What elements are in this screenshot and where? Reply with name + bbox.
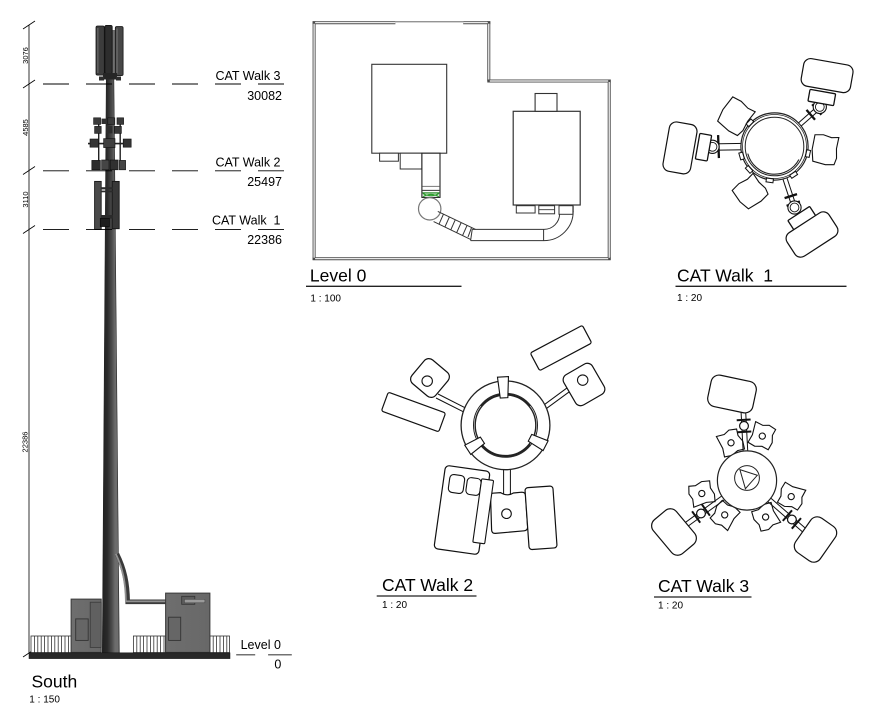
svg-text:CAT Walk 1: CAT Walk 1 [212,214,281,228]
svg-text:1 : 20: 1 : 20 [677,293,702,304]
svg-text:1 : 20: 1 : 20 [382,600,407,611]
svg-text:Level 0: Level 0 [241,638,281,652]
svg-text:3076: 3076 [21,47,30,64]
svg-text:4585: 4585 [21,119,30,136]
svg-text:1 : 20: 1 : 20 [658,601,683,612]
svg-text:0: 0 [274,658,281,672]
svg-text:25497: 25497 [247,175,282,189]
svg-text:1 : 100: 1 : 100 [310,294,341,305]
svg-text:CAT Walk 2: CAT Walk 2 [215,156,280,170]
svg-text:1 : 150: 1 : 150 [29,695,60,706]
svg-text:30082: 30082 [247,89,282,103]
svg-text:CAT Walk 3: CAT Walk 3 [215,69,280,83]
svg-text:Level 0: Level 0 [310,266,367,286]
svg-text:CAT Walk 3: CAT Walk 3 [658,576,749,596]
svg-text:3110: 3110 [21,191,30,207]
svg-text:CAT Walk 1: CAT Walk 1 [677,266,773,286]
svg-text:22386: 22386 [247,233,282,247]
svg-text:CAT Walk 2: CAT Walk 2 [382,575,473,595]
svg-text:South: South [32,672,78,692]
svg-text:22386: 22386 [21,432,30,453]
